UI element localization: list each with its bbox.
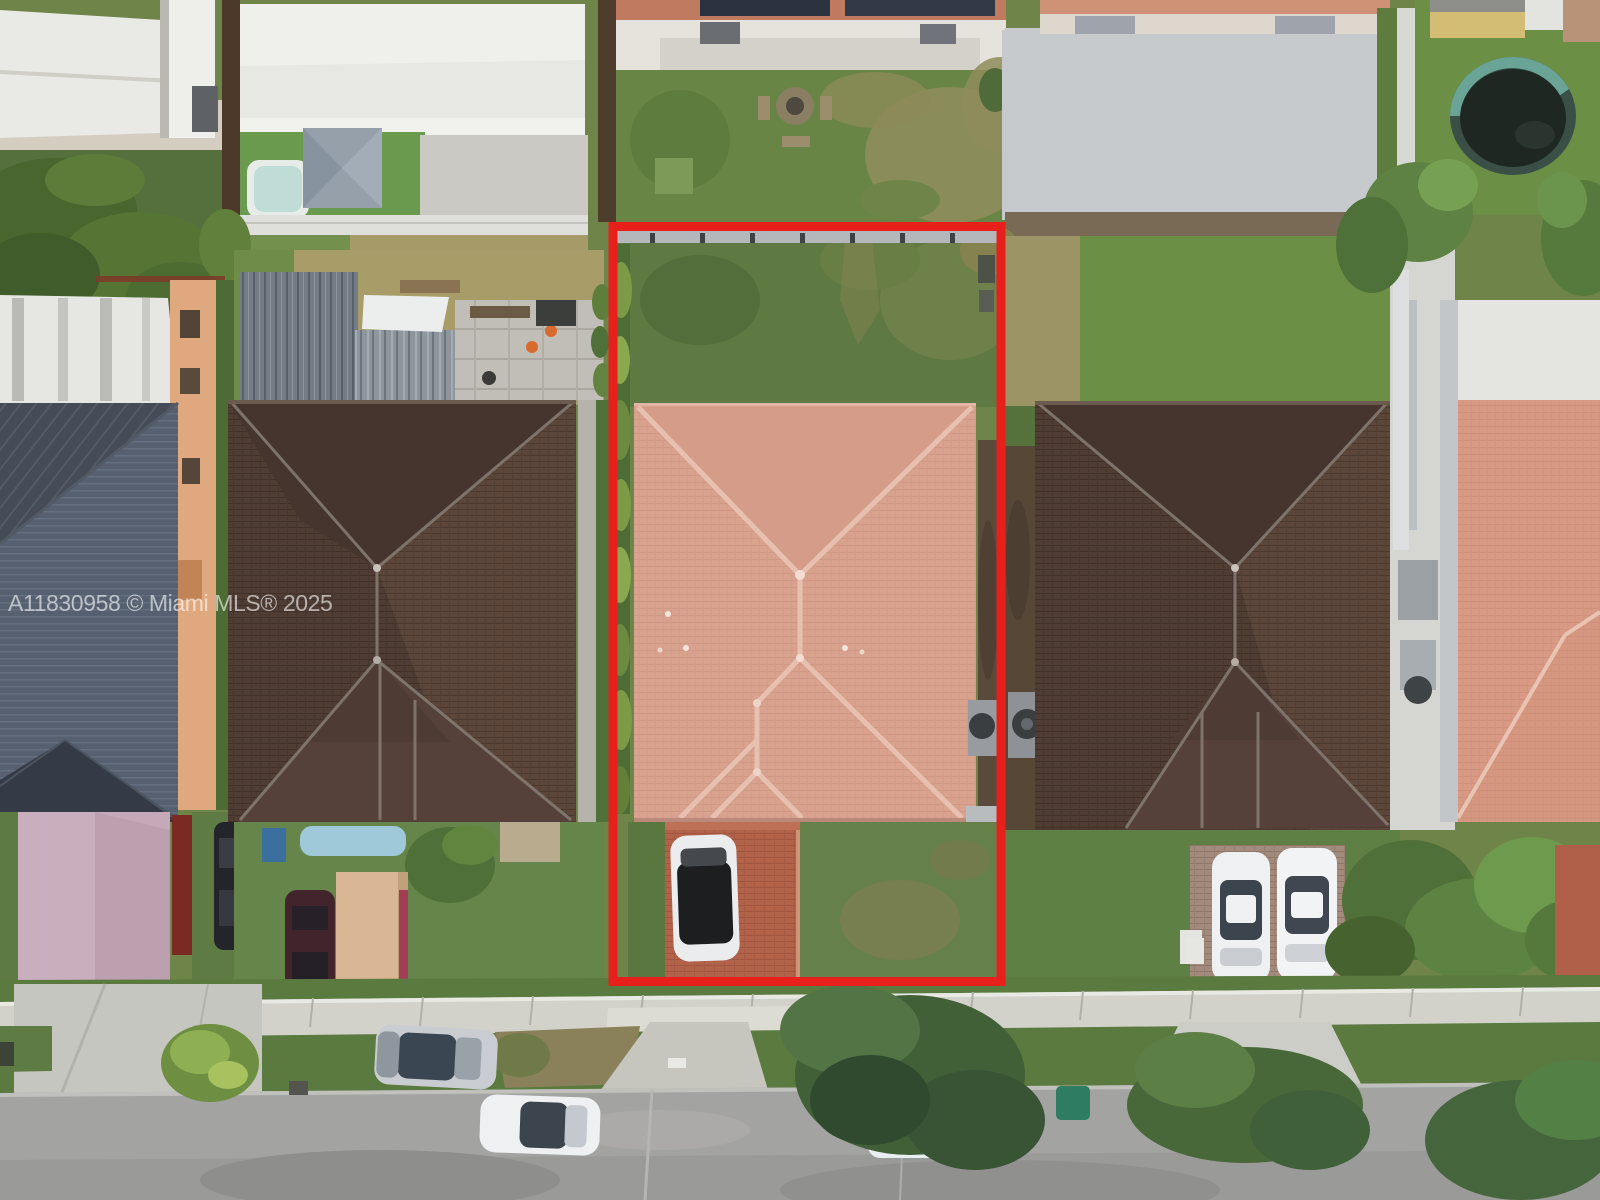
svg-text:A11830958 © Miami MLS® 2025: A11830958 © Miami MLS® 2025 [8, 590, 332, 616]
